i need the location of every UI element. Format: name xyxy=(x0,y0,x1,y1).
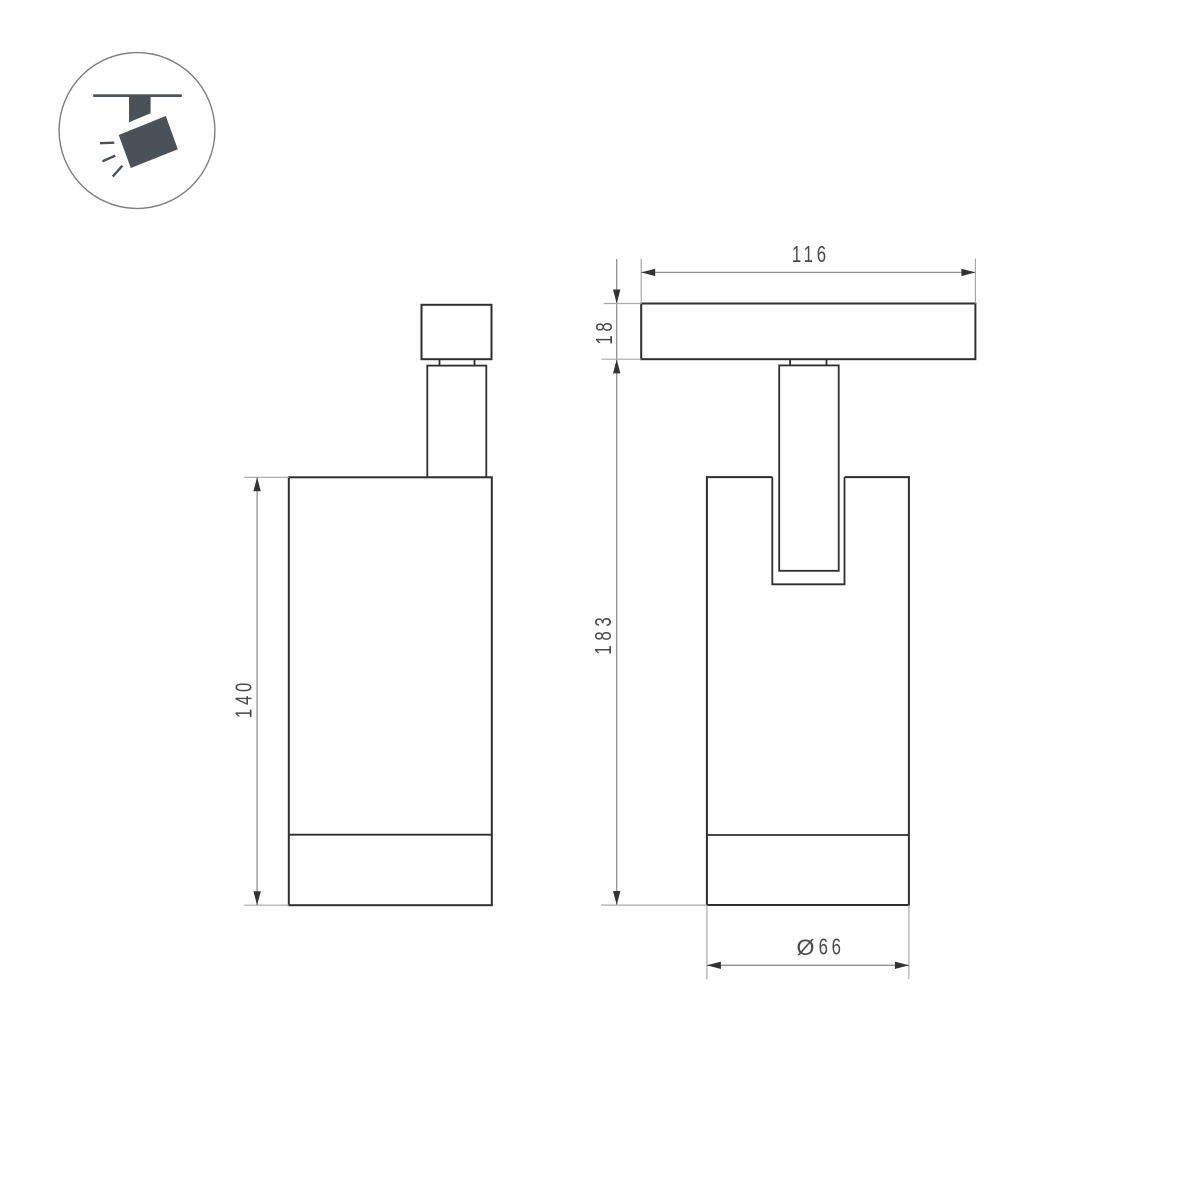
svg-text:116: 116 xyxy=(792,242,830,267)
svg-text:66: 66 xyxy=(819,935,845,960)
svg-text:140: 140 xyxy=(232,679,257,718)
svg-text:183: 183 xyxy=(591,612,616,654)
svg-text:Ø: Ø xyxy=(797,935,815,960)
svg-text:18: 18 xyxy=(592,319,617,345)
